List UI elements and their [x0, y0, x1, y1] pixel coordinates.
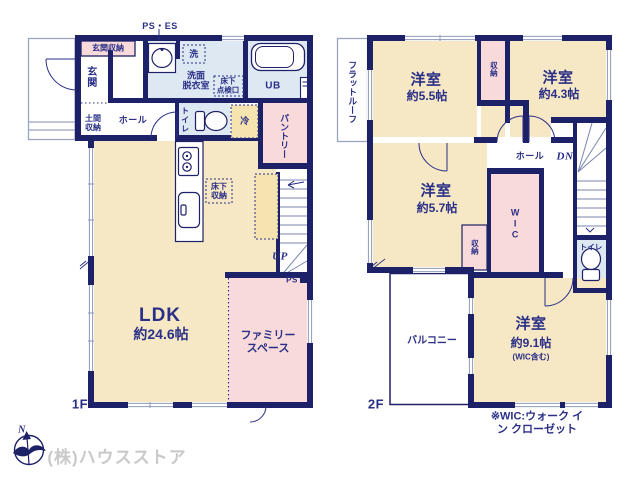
company-name: (株)ハウスストア [47, 448, 186, 468]
dn-label: DN [557, 151, 574, 164]
doma-storage-label: 土間 収納 [85, 114, 101, 132]
ps-es-label: PS・ES [142, 21, 178, 31]
wic-label: WIC [510, 208, 520, 241]
flat-roof-label: フラットルーフ [347, 61, 357, 124]
fridge-label: 冷 [240, 116, 250, 126]
closet-mid-label: 収納 [470, 240, 479, 255]
hall-2f-label: ホール [516, 151, 545, 161]
family-space-label: ファミリー スペース [241, 329, 296, 354]
genkan-storage-label: 玄関収納 [92, 43, 124, 52]
floor-2f-label: 2F [368, 398, 384, 413]
room55-size-label: 約5.5帖 [407, 90, 448, 104]
room55-name-label: 洋室 [410, 71, 441, 88]
ldk-name-label: LDK [139, 305, 181, 327]
closet-top-label: 収納 [489, 62, 498, 77]
floorplan-page: PS・ES 玄関収納 玄関 土間 収納 ホール 洗 洗面 脱衣室 床下 点検口 … [0, 0, 640, 480]
compass-icon [13, 431, 46, 465]
room91-note-label: (WIC含む) [513, 352, 550, 361]
vanity-icon [149, 44, 176, 73]
room91-name-label: 洋室 [515, 315, 546, 332]
kitchen-island [176, 142, 204, 242]
floor-hatch-label: 床下 点検口 [217, 77, 240, 94]
toilet-2f-label: トイレ [580, 244, 603, 253]
room91-size-label: 約9.1帖 [511, 337, 552, 351]
ldk-size-label: 約24.6帖 [133, 326, 188, 342]
wic-note: ※WIC:ウォーク イン クローゼット [486, 410, 589, 435]
laundry-label: 洗 [189, 49, 199, 59]
genkan-label: 玄関 [84, 66, 96, 88]
toilet-1f-icon [196, 112, 228, 131]
underfloor-storage-label: 床下 収納 [211, 182, 227, 200]
floor-1f-label: 1F [72, 398, 88, 413]
room57-size-label: 約5.7帖 [417, 202, 458, 216]
up-label: UP [272, 251, 288, 264]
toilet-2f-icon [582, 249, 601, 281]
hall-1f-label: ホール [119, 115, 148, 125]
room43-name-label: 洋室 [542, 69, 573, 86]
pantry-label: パントリー [279, 114, 289, 159]
room43-size-label: 約4.3帖 [539, 88, 580, 102]
toilet-1f-label: トイレ [180, 107, 189, 134]
ps-label: PS [286, 275, 298, 284]
stairs-2f [577, 123, 606, 232]
ub-label: UB [265, 80, 280, 92]
compass-n-label: N [18, 424, 26, 436]
washroom-label: 洗面 脱衣室 [182, 71, 209, 92]
room57-name-label: 洋室 [420, 182, 451, 199]
balcony-label: バルコニー [407, 335, 457, 347]
